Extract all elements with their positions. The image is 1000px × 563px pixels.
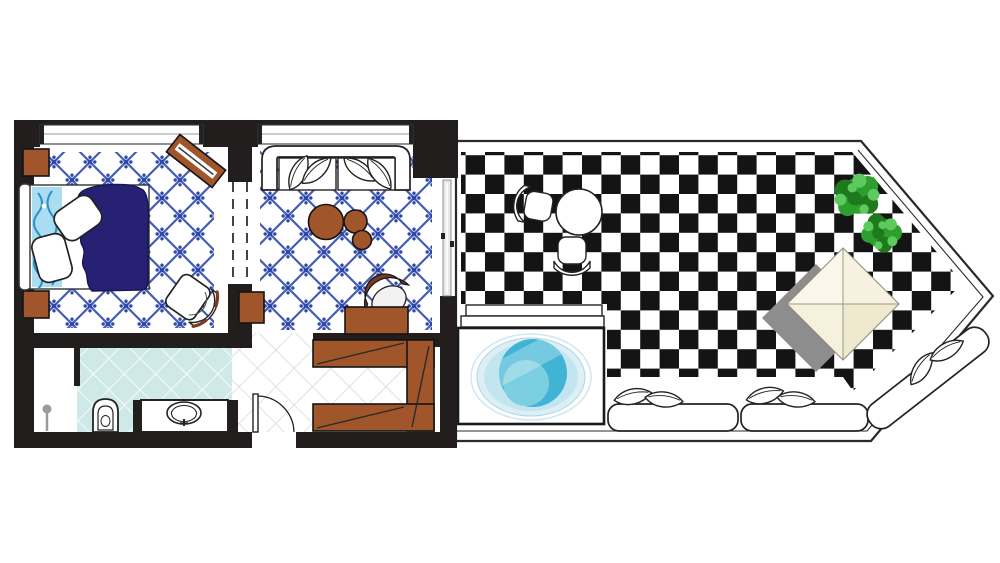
wall-bedroom-bathroom xyxy=(14,333,232,348)
round-table-medium xyxy=(344,210,367,233)
window xyxy=(258,125,413,144)
floor-plan-page xyxy=(0,0,1000,563)
wall-vanity-stub-left xyxy=(133,400,141,432)
bed xyxy=(30,184,149,291)
toilet xyxy=(93,399,118,432)
desk xyxy=(345,307,408,334)
wall-bottom-left xyxy=(14,432,252,448)
nightstand xyxy=(23,149,49,176)
wall-right-lower xyxy=(440,296,457,448)
wall-shower-partition xyxy=(74,348,80,386)
deck-step xyxy=(461,316,604,327)
side-table xyxy=(239,292,264,323)
round-table-large xyxy=(309,205,344,240)
sofa xyxy=(262,146,410,194)
wall-top-right-corner xyxy=(413,120,458,178)
jacuzzi-deck xyxy=(458,305,604,424)
glass-door xyxy=(441,180,454,296)
terrace xyxy=(456,141,994,441)
nightstand xyxy=(23,291,49,318)
bistro-table xyxy=(556,189,602,235)
headboard xyxy=(19,184,31,290)
wall-vanity-stub-right xyxy=(228,400,238,432)
deck-step xyxy=(466,305,602,316)
vanity xyxy=(141,400,228,432)
floor-plan-drawing xyxy=(0,0,1000,563)
wall-bottom-right xyxy=(296,432,456,448)
round-table-small xyxy=(353,231,372,250)
wall-partition-top xyxy=(228,120,252,182)
